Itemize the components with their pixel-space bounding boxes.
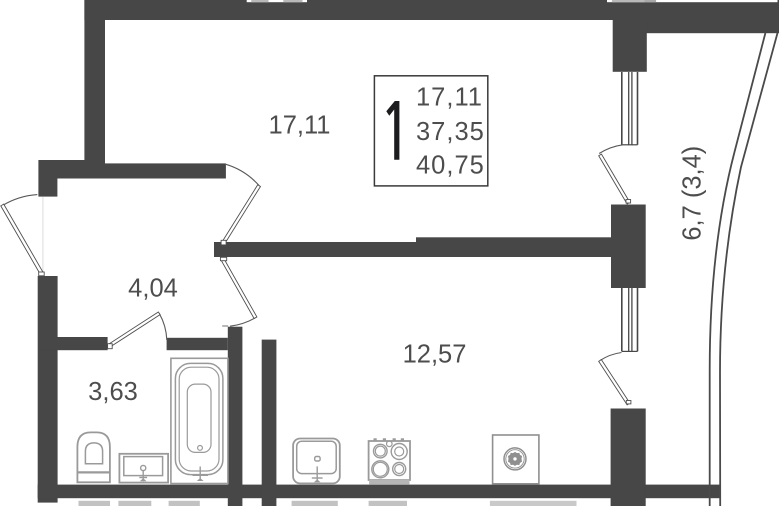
svg-text:17,11: 17,11 (416, 84, 483, 112)
svg-text:17,11: 17,11 (269, 112, 331, 140)
svg-text:4,04: 4,04 (128, 275, 178, 303)
svg-text:12,57: 12,57 (403, 341, 467, 369)
svg-text:3,63: 3,63 (88, 378, 138, 406)
svg-text:40,75: 40,75 (416, 151, 485, 179)
svg-text:6,7 (3,4): 6,7 (3,4) (679, 146, 707, 241)
svg-text:37,35: 37,35 (416, 118, 485, 146)
